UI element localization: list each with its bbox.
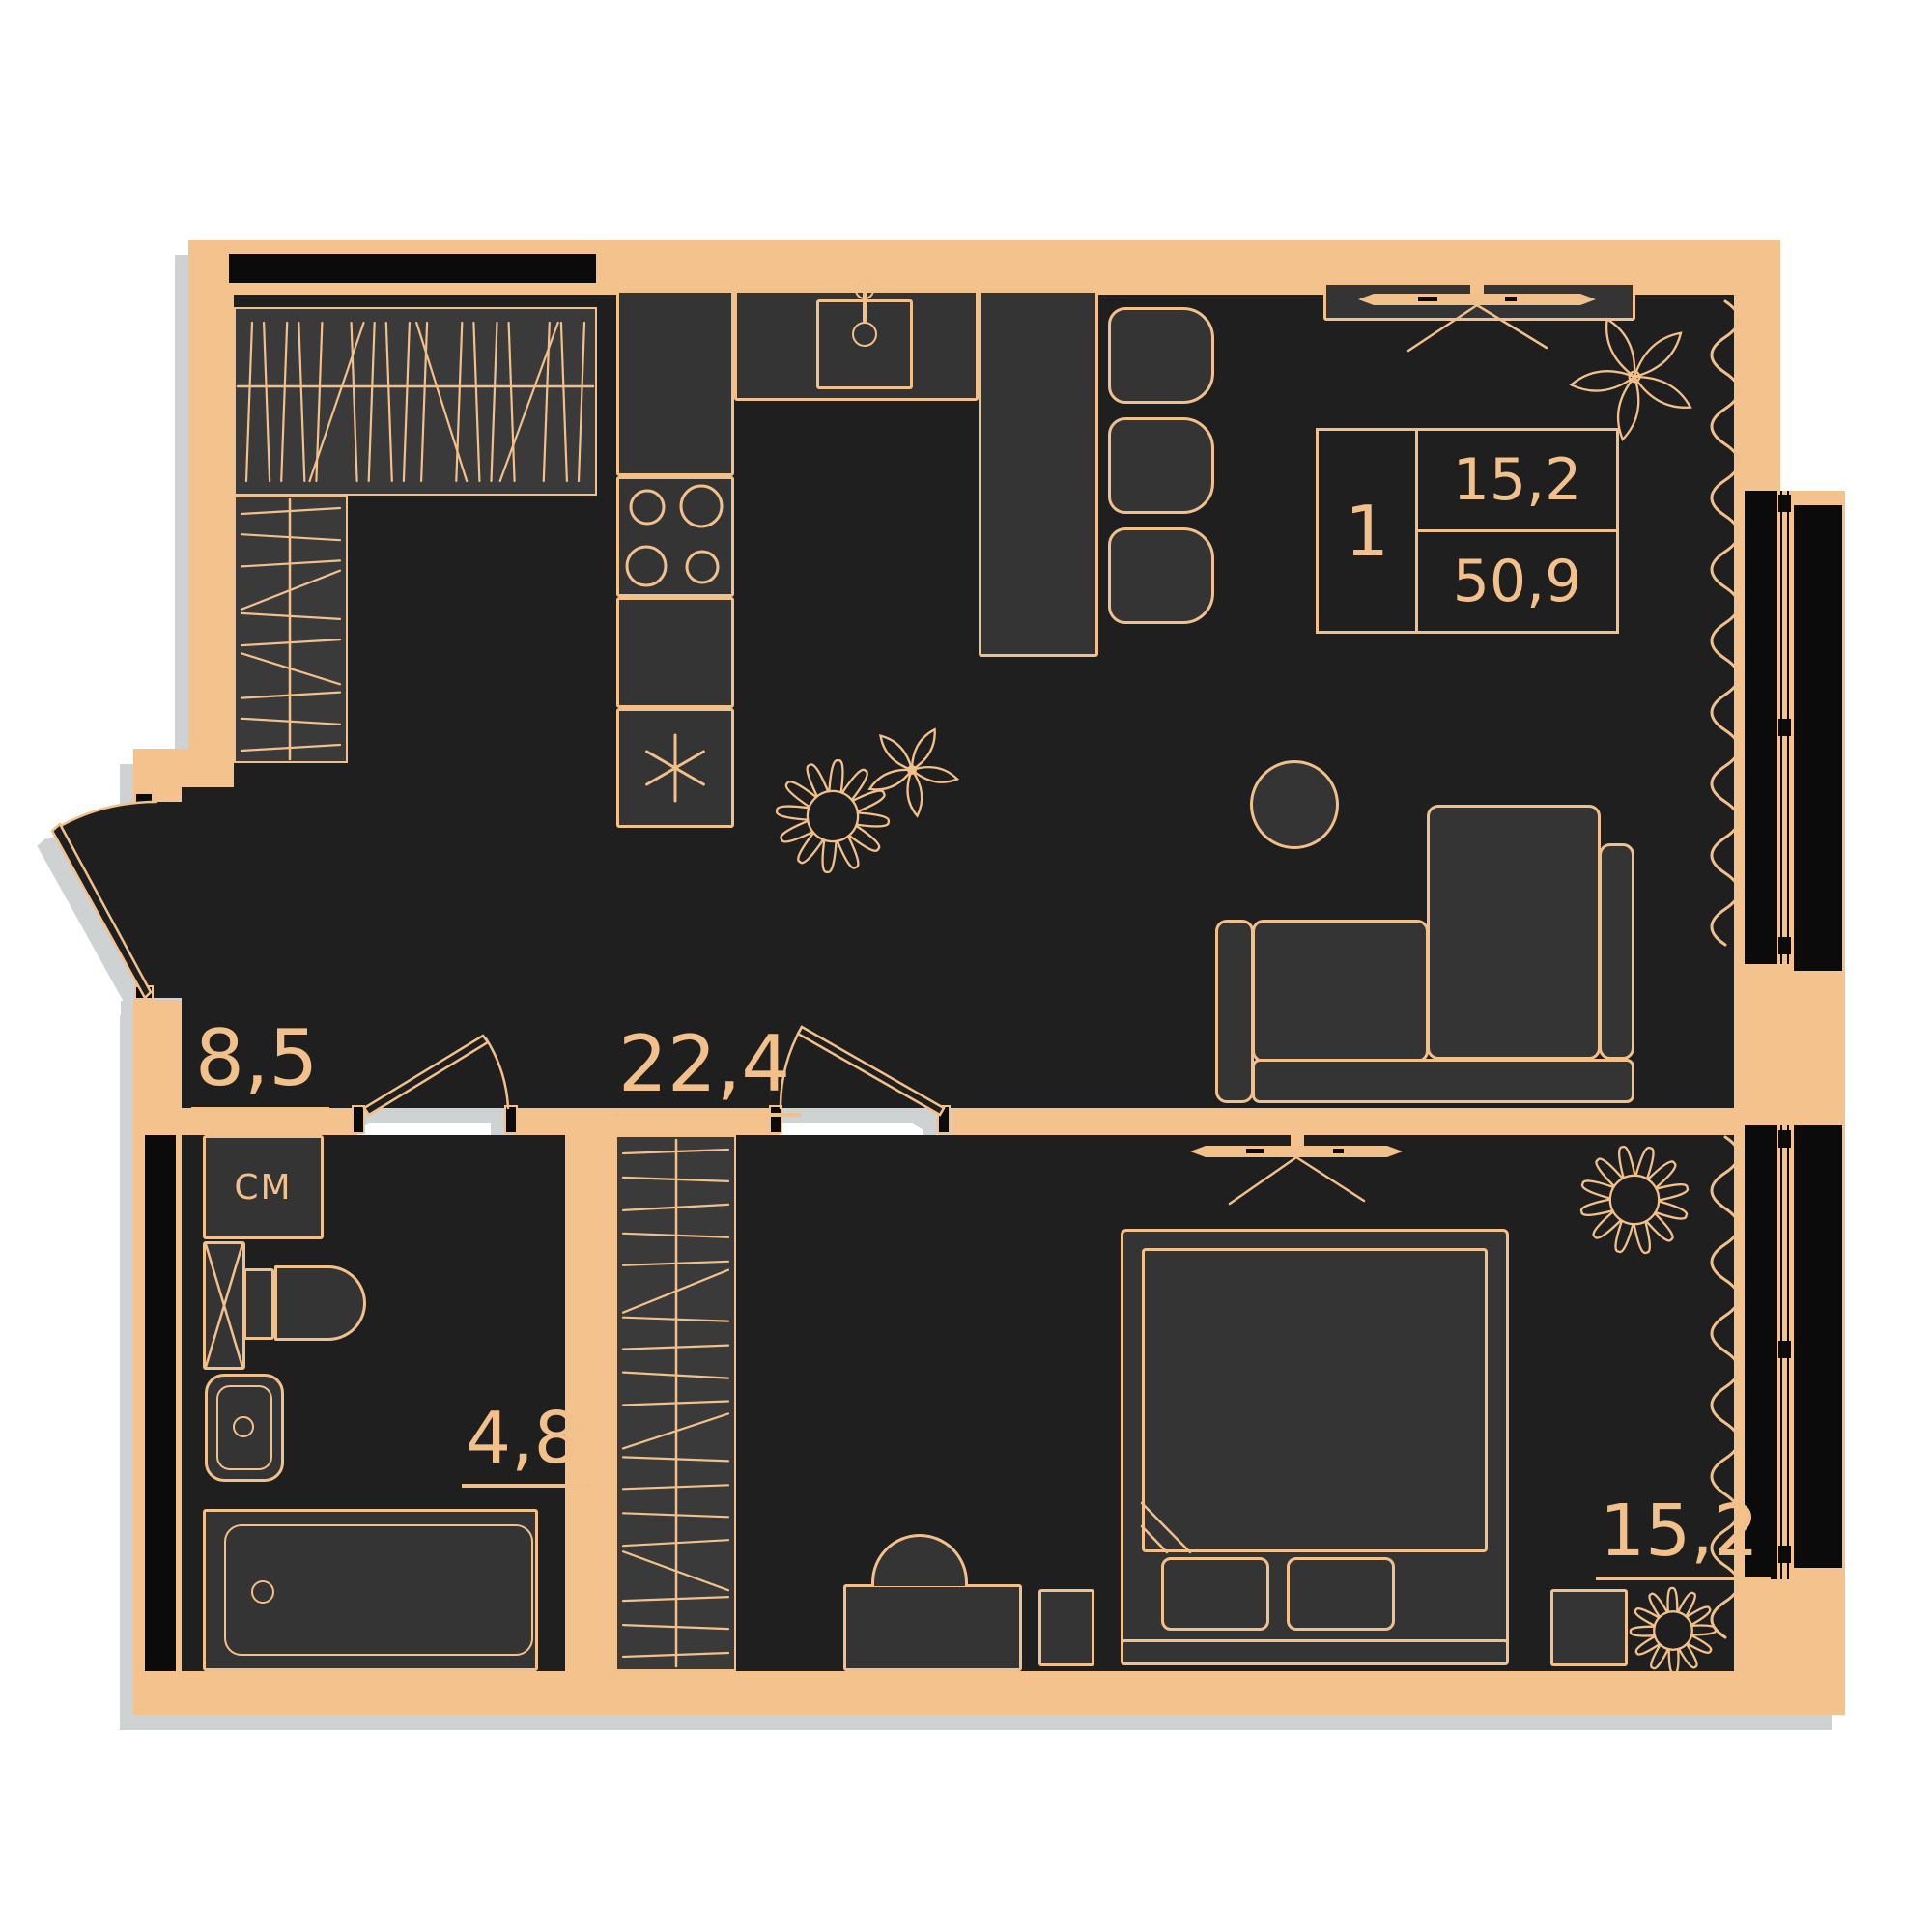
- room-label-bathroom: 4,8: [462, 1403, 591, 1488]
- plan-labels: 8,5 22,4 4,8 15,2 СМ 1 15,2 50,9: [0, 0, 1932, 1932]
- unit-areas: 15,2 50,9: [1418, 431, 1616, 631]
- bathroom-area-value: 4,8: [462, 1403, 591, 1488]
- room-label-hallway: 8,5: [191, 1020, 329, 1111]
- unit-living-area: 15,2: [1418, 431, 1616, 529]
- unit-info-box: 1 15,2 50,9: [1316, 428, 1619, 634]
- bedroom-area-value: 15,2: [1596, 1495, 1771, 1580]
- room-label-bedroom: 15,2: [1596, 1495, 1771, 1580]
- washing-machine-label: СМ: [203, 1135, 324, 1239]
- hallway-area-value: 8,5: [191, 1020, 329, 1111]
- room-label-kitchen-living: 22,4: [614, 1026, 802, 1117]
- unit-rooms-count: 1: [1319, 431, 1418, 631]
- floor-plan: 8,5 22,4 4,8 15,2 СМ 1 15,2 50,9: [0, 0, 1932, 1932]
- washing-machine-text: СМ: [234, 1168, 292, 1207]
- unit-total-area: 50,9: [1418, 529, 1616, 631]
- page: 8,5 22,4 4,8 15,2 СМ 1 15,2 50,9: [0, 0, 1932, 1932]
- kitchen-living-area-value: 22,4: [614, 1026, 802, 1117]
